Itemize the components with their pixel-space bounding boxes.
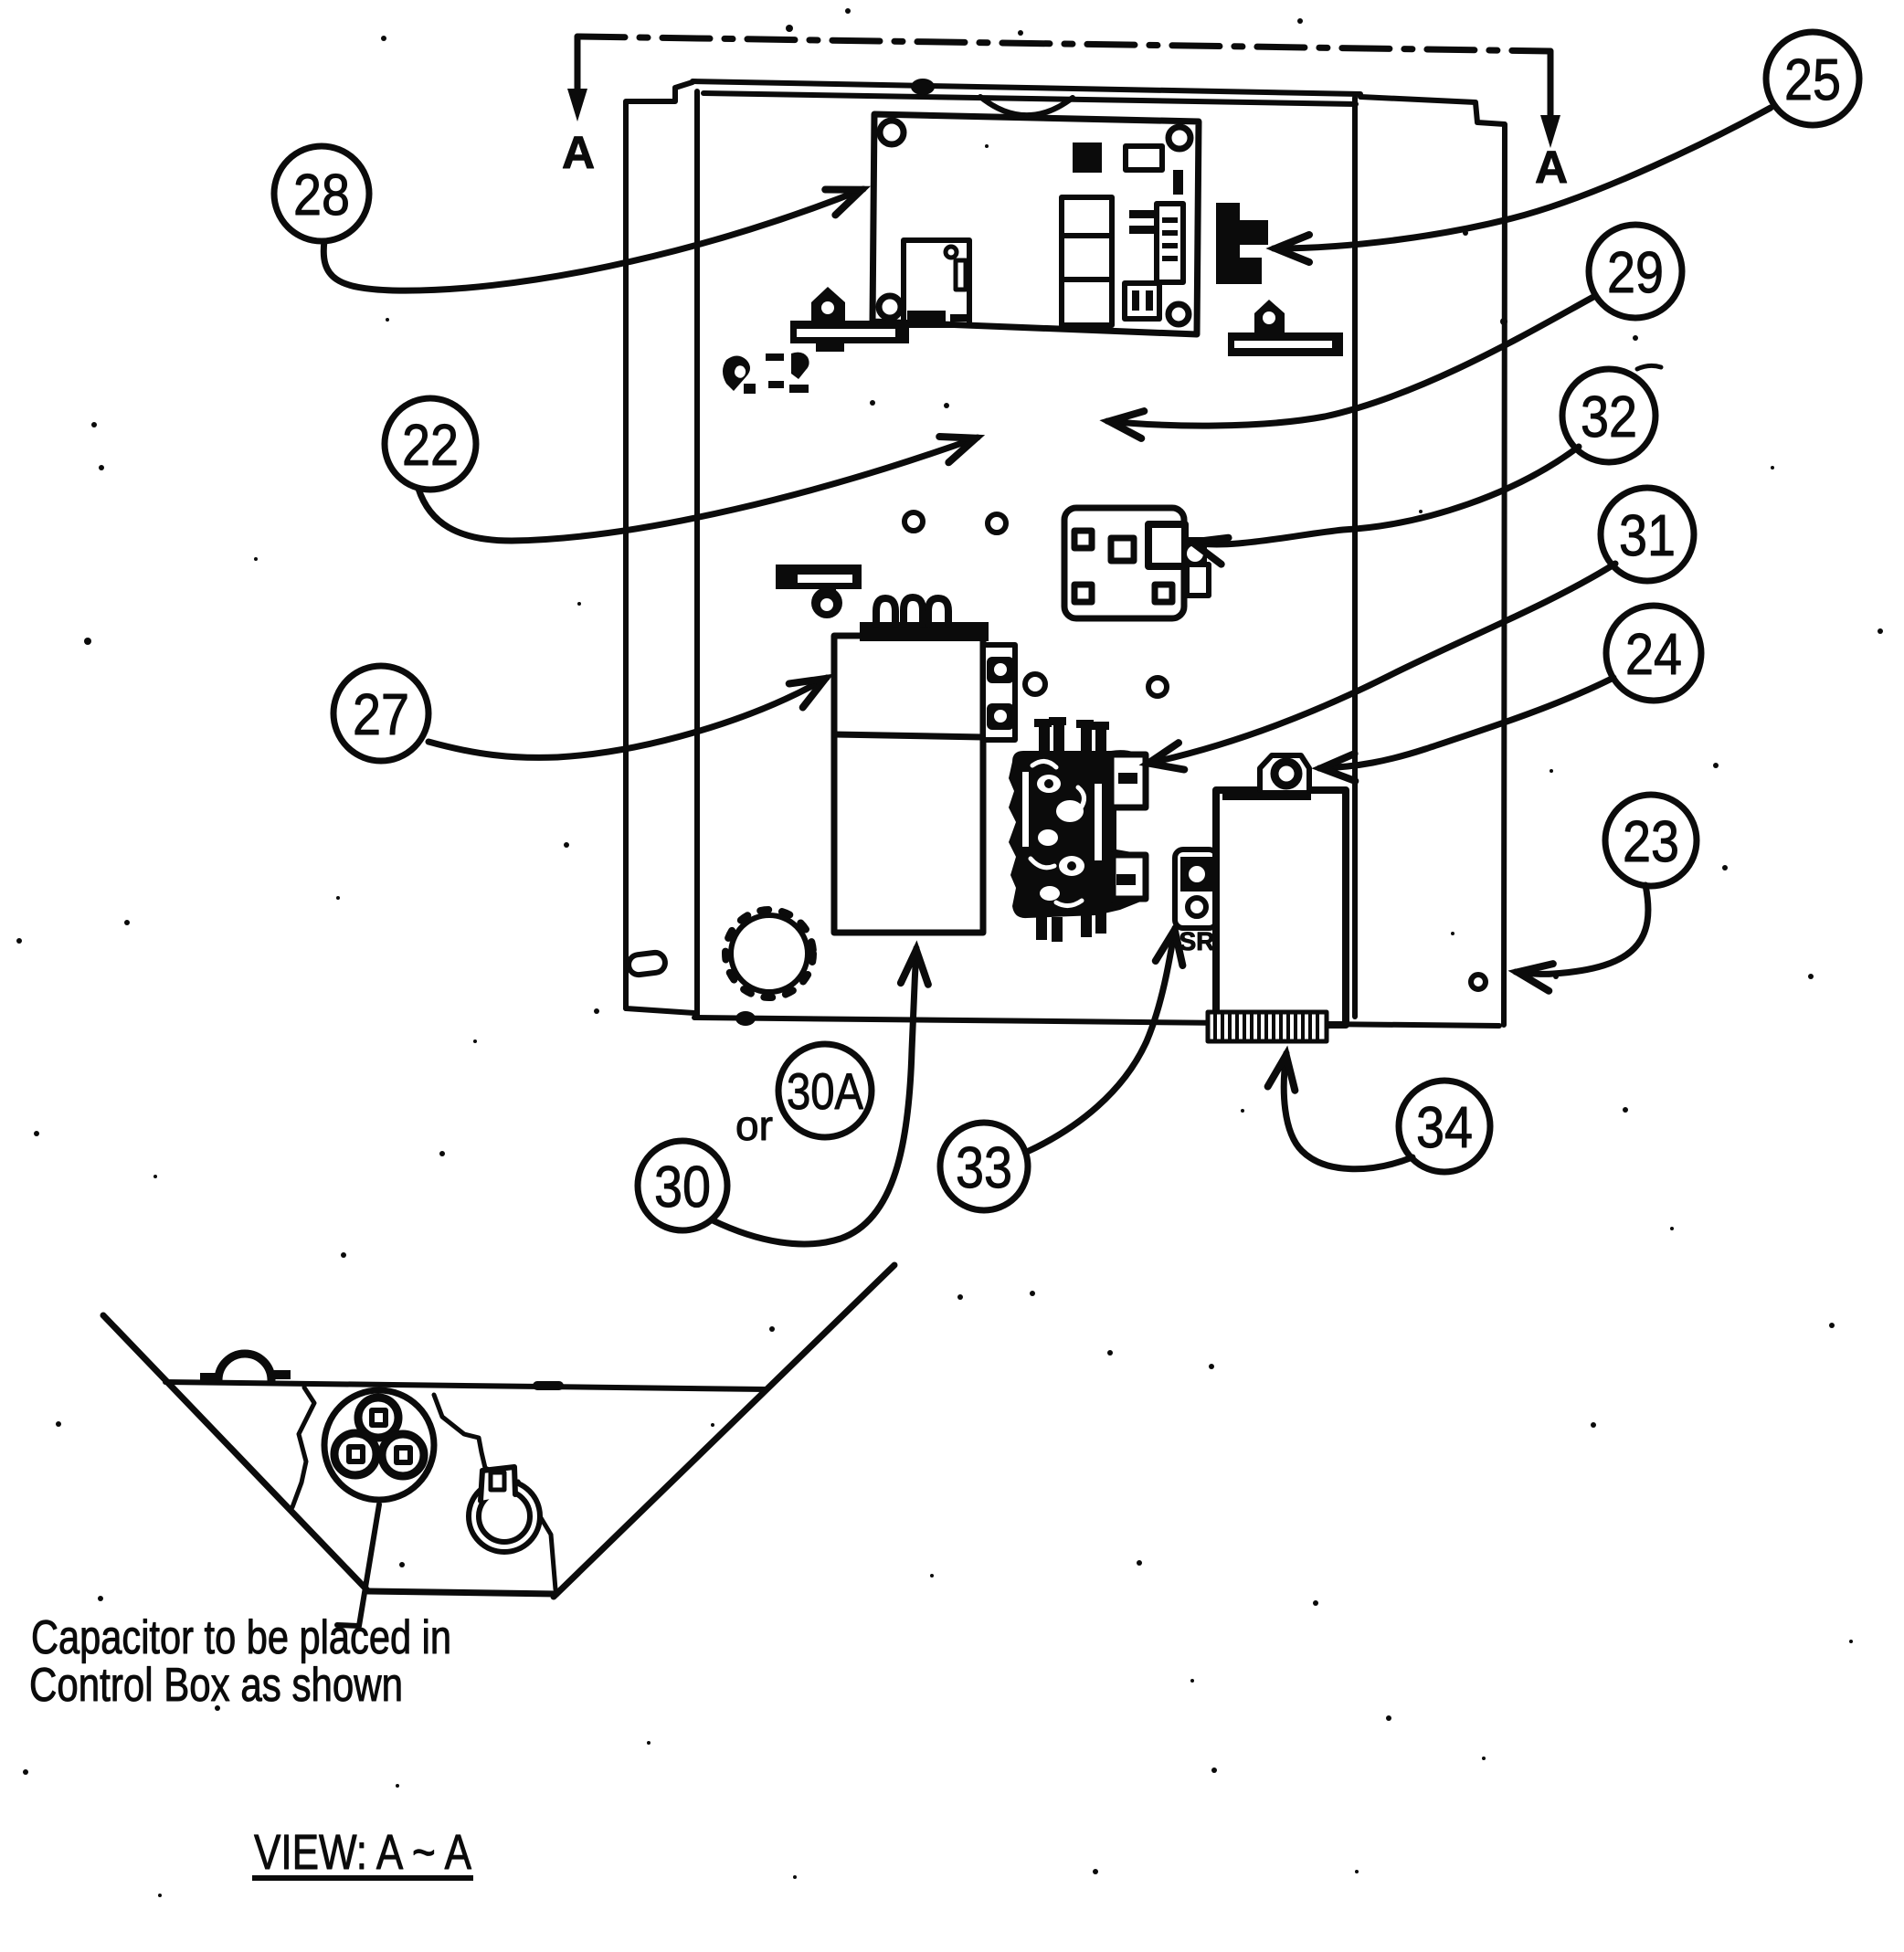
- svg-text:29: 29: [1607, 239, 1664, 305]
- svg-text:or: or: [735, 1102, 773, 1149]
- svg-text:VIEW: A ~ A: VIEW: A ~ A: [254, 1825, 471, 1880]
- svg-text:30A: 30A: [787, 1062, 864, 1120]
- svg-text:Control Box as shown: Control Box as shown: [29, 1659, 403, 1712]
- svg-text:30: 30: [654, 1154, 711, 1219]
- svg-text:28: 28: [293, 162, 350, 227]
- svg-text:33: 33: [956, 1134, 1012, 1200]
- svg-text:A: A: [1535, 142, 1568, 193]
- svg-text:32: 32: [1581, 384, 1637, 449]
- svg-text:23: 23: [1623, 808, 1679, 874]
- svg-text:Capacitor to be placed in: Capacitor to be placed in: [31, 1611, 451, 1664]
- svg-text:24: 24: [1625, 621, 1682, 687]
- svg-text:22: 22: [402, 412, 459, 478]
- svg-text:SR: SR: [1179, 927, 1215, 955]
- svg-text:27: 27: [353, 681, 409, 747]
- svg-text:25: 25: [1784, 47, 1841, 112]
- svg-text:A: A: [562, 127, 595, 178]
- svg-text:34: 34: [1416, 1094, 1473, 1160]
- svg-text:31: 31: [1619, 502, 1676, 568]
